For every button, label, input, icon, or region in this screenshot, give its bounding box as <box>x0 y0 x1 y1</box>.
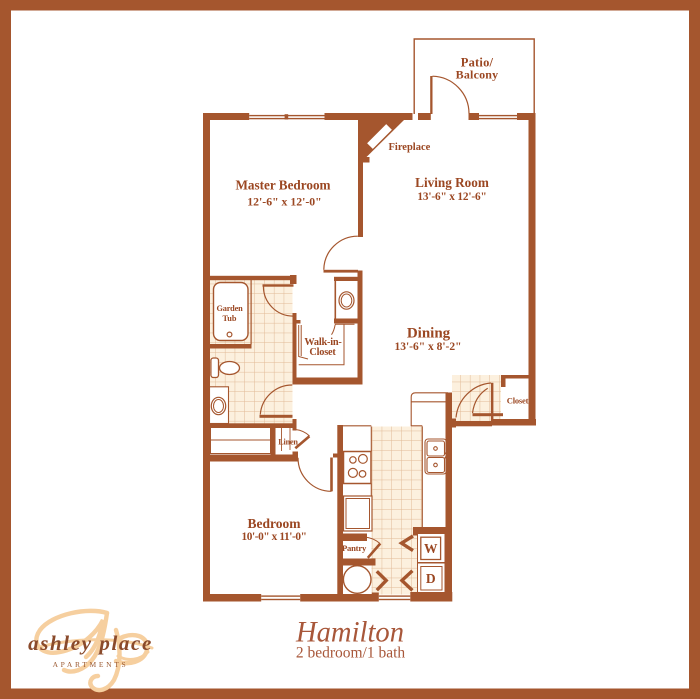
svg-text:13'-6" x 8'-2": 13'-6" x 8'-2" <box>394 341 461 353</box>
svg-text:W: W <box>424 541 438 556</box>
svg-text:Bedroom: Bedroom <box>248 516 302 531</box>
svg-text:Closet: Closet <box>507 395 529 405</box>
svg-text:Fireplace: Fireplace <box>389 142 431 153</box>
svg-text:ashley place: ashley place <box>28 631 153 655</box>
svg-text:Dining: Dining <box>407 326 451 342</box>
svg-text:Walk-in-: Walk-in- <box>304 337 342 348</box>
svg-text:13'-6" x 12'-6": 13'-6" x 12'-6" <box>417 191 486 203</box>
svg-text:10'-0" x 11'-0": 10'-0" x 11'-0" <box>242 531 307 543</box>
svg-text:2 bedroom/1 bath: 2 bedroom/1 bath <box>296 645 406 662</box>
svg-text:Tub: Tub <box>222 314 236 323</box>
svg-text:Pantry: Pantry <box>342 543 367 553</box>
svg-text:Living Room: Living Room <box>415 175 489 190</box>
svg-text:Closet: Closet <box>309 347 336 358</box>
svg-text:APARTMENTS: APARTMENTS <box>53 660 129 669</box>
svg-text:Master Bedroom: Master Bedroom <box>235 178 330 193</box>
svg-text:Balcony: Balcony <box>456 67 499 81</box>
svg-text:12'-6" x 12'-0": 12'-6" x 12'-0" <box>247 196 321 209</box>
svg-text:Garden: Garden <box>217 304 244 313</box>
svg-text:D: D <box>426 571 436 586</box>
